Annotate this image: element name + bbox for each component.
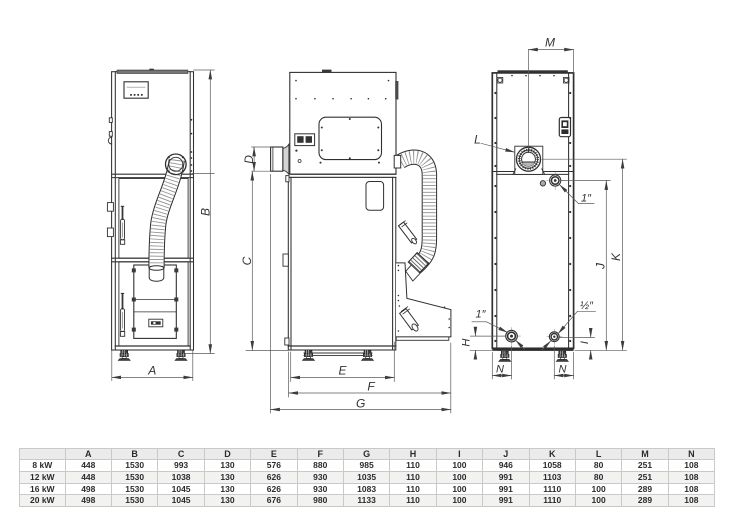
svg-text:G: G bbox=[356, 396, 365, 410]
svg-text:H: H bbox=[460, 339, 472, 347]
svg-text:½″: ½″ bbox=[580, 300, 594, 312]
svg-text:1″: 1″ bbox=[475, 308, 486, 320]
svg-text:M: M bbox=[545, 35, 555, 49]
svg-text:F: F bbox=[367, 380, 375, 394]
svg-text:I: I bbox=[579, 341, 591, 344]
svg-text:N: N bbox=[496, 364, 504, 376]
svg-text:1″: 1″ bbox=[581, 192, 592, 204]
svg-text:D: D bbox=[242, 155, 256, 164]
svg-text:C: C bbox=[240, 256, 254, 265]
svg-text:A: A bbox=[147, 364, 156, 378]
svg-text:K: K bbox=[609, 252, 623, 261]
svg-text:E: E bbox=[338, 364, 347, 378]
svg-text:L: L bbox=[474, 133, 481, 147]
svg-text:N: N bbox=[559, 364, 567, 376]
svg-text:J: J bbox=[593, 262, 607, 270]
svg-text:B: B bbox=[199, 208, 213, 216]
